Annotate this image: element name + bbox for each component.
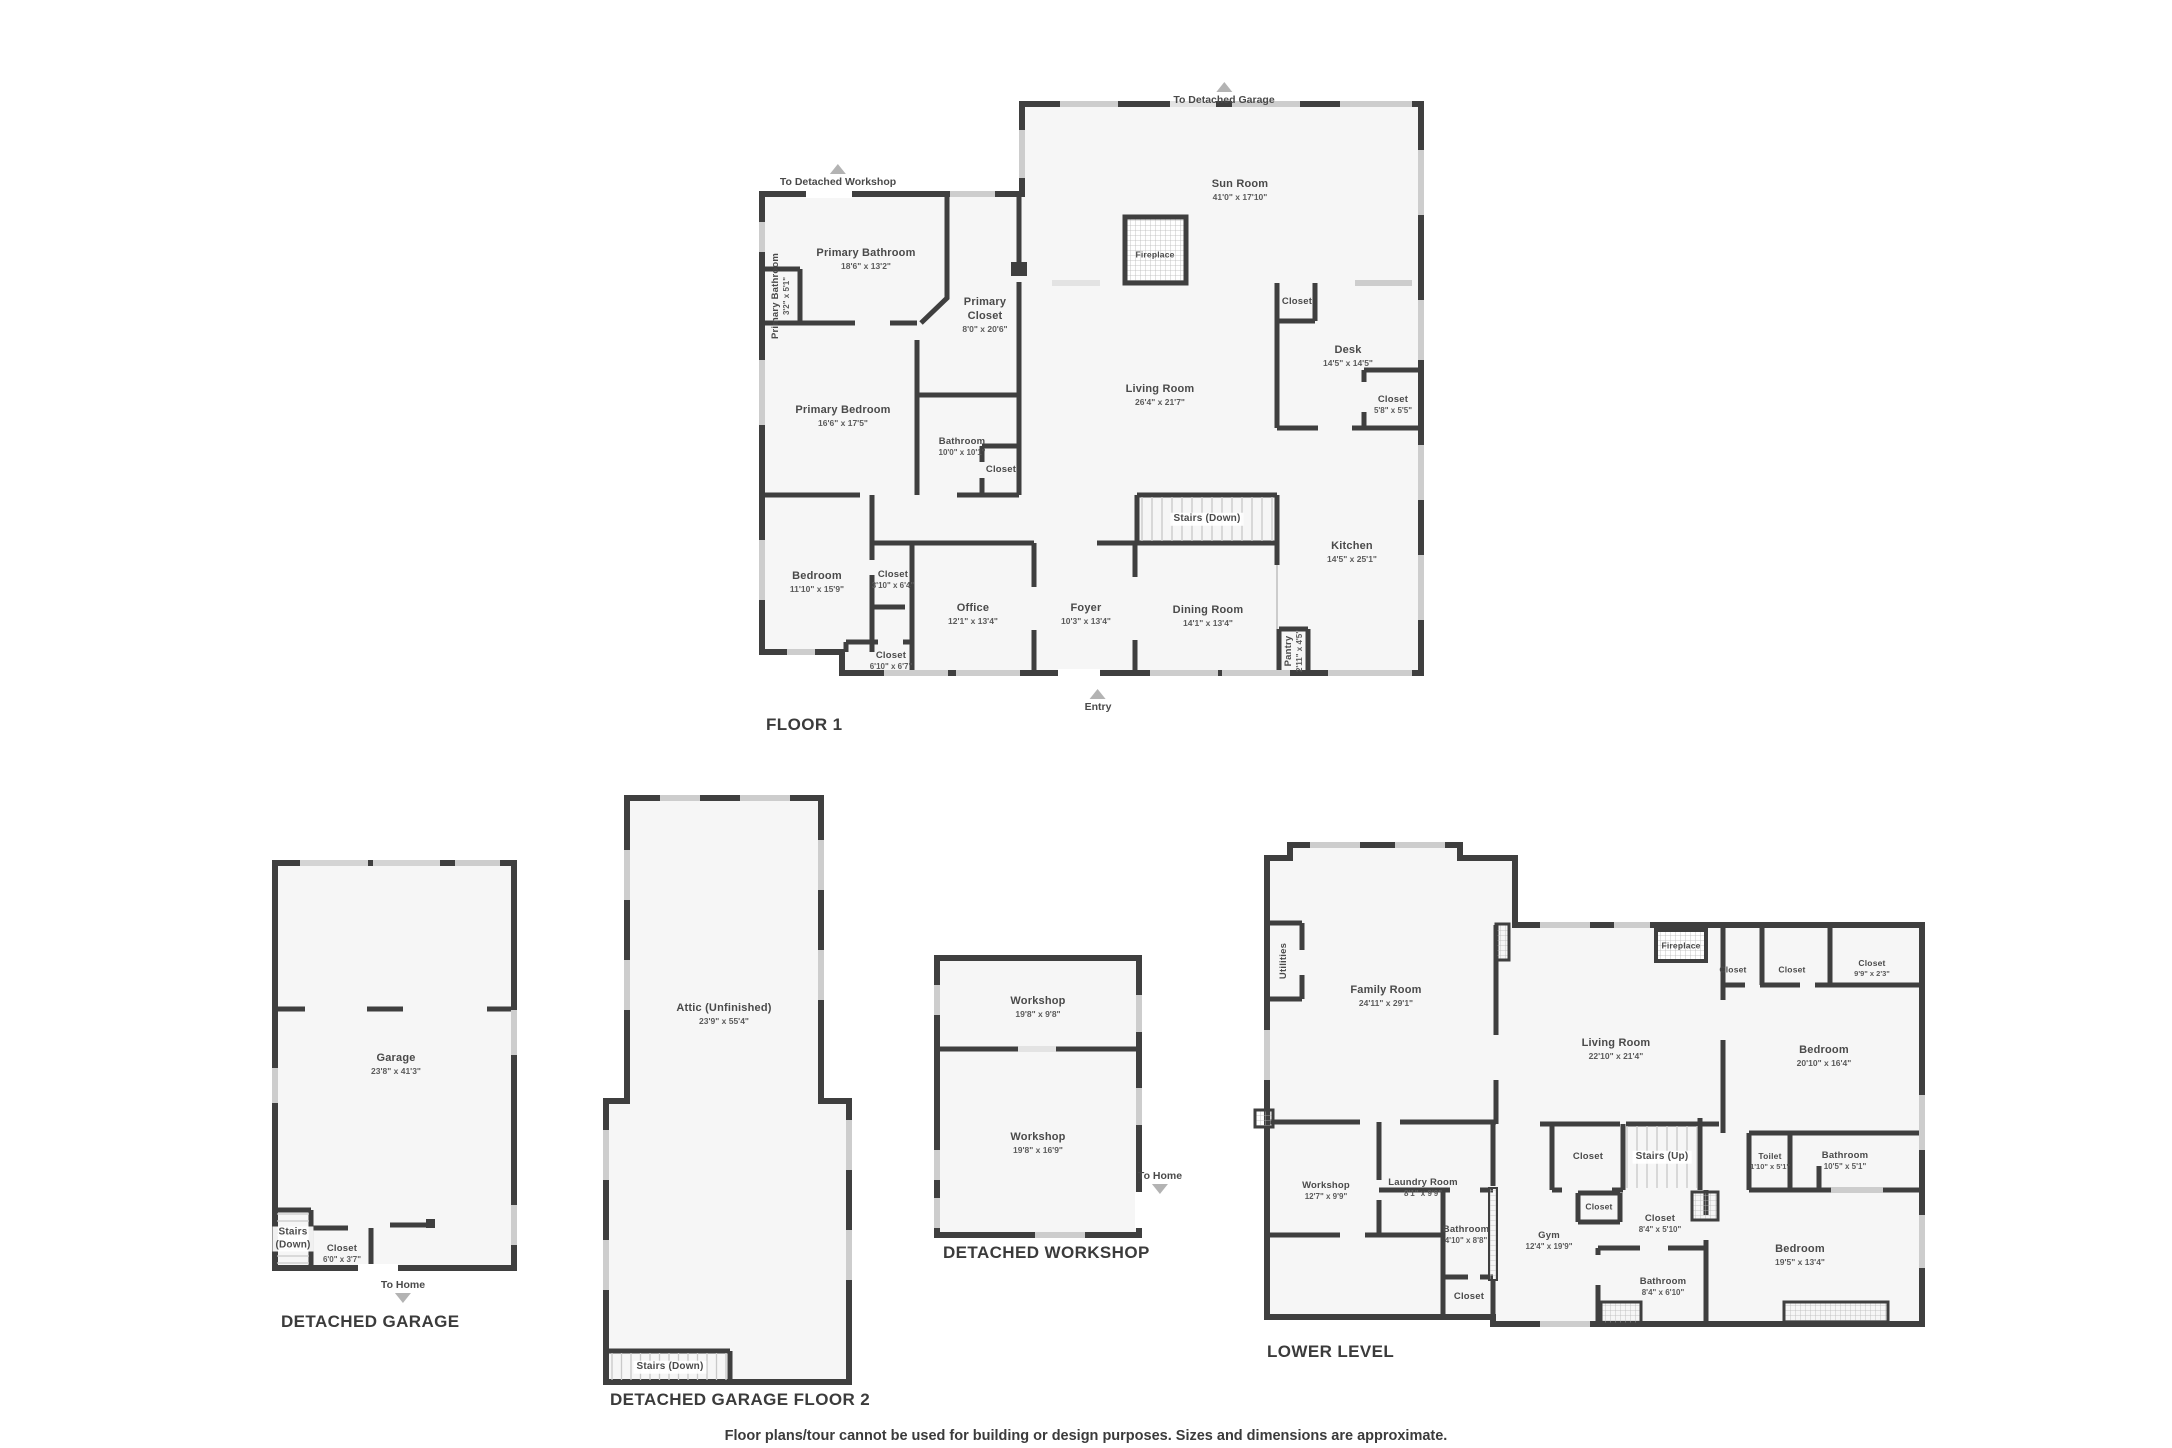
disclaimer-text: Floor plans/tour cannot be used for buil… bbox=[0, 1428, 2172, 1444]
floor-fills bbox=[275, 104, 1922, 1382]
floorplan-canvas bbox=[0, 0, 2172, 1448]
